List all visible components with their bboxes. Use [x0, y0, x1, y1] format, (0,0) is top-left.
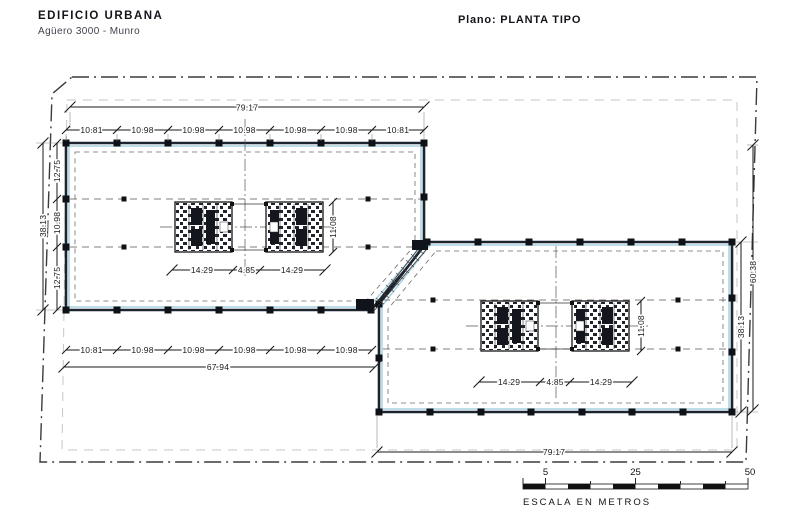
- dim-top-bay-label: 10.98: [233, 125, 255, 135]
- dim-left-bay-label: 10.98: [52, 212, 62, 234]
- dim-top-bay-label: 10.81: [80, 125, 102, 135]
- dim-bottom-total-a-label: 67.94: [207, 362, 229, 372]
- dim-core-a-label: 14.29: [191, 265, 213, 275]
- dim-top-bay-label: 10.81: [387, 125, 409, 135]
- scale-bar-caption: ESCALA EN METROS: [523, 497, 651, 508]
- dim-core-b-label: 4.85: [546, 377, 563, 387]
- scale-bar: 5 25 50 ESCALA EN METROS: [523, 467, 755, 508]
- dim-top-total-label: 79.17: [236, 103, 258, 113]
- dim-bottom-bay-label: 10.98: [335, 345, 357, 355]
- dim-bottom-bay-label: 10.98: [182, 345, 204, 355]
- dim-top-bay-label: 10.98: [335, 125, 357, 135]
- dim-bottom-total-b-label: 79.17: [543, 447, 565, 457]
- dim-core-a-label: 14.29: [281, 265, 303, 275]
- dim-top-total: 79.17: [65, 102, 430, 113]
- dim-bottom-bays-a: 10.81 10.98 10.98 10.98 10.98 10.98: [62, 345, 376, 355]
- dim-left-bay-label: 12.75: [52, 267, 62, 289]
- dim-left-bays: 12.75 10.98 12.75: [52, 139, 62, 314]
- dim-right-site: 60.38: [748, 140, 759, 416]
- dim-left-total-label: 38.13: [38, 215, 48, 237]
- dim-right-building-label: 38.13: [736, 316, 746, 338]
- scale-bar-label-50: 50: [745, 467, 756, 478]
- scale-bar-label-25: 25: [630, 467, 641, 478]
- scale-bar-label-5: 5: [543, 467, 548, 478]
- dim-right-site-label: 60.38: [748, 261, 758, 283]
- joint-end-block-bottom: [356, 299, 374, 310]
- dim-left-total: 38.13: [38, 138, 49, 316]
- dim-left-bay-label: 12.75: [52, 160, 62, 182]
- dim-bottom-bay-label: 10.98: [233, 345, 255, 355]
- dim-top-bay-label: 10.98: [131, 125, 153, 135]
- dim-bottom-bay-label: 10.81: [80, 345, 102, 355]
- dim-core-b-label: 14.29: [590, 377, 612, 387]
- building-b: [376, 239, 736, 416]
- dim-core-b-label: 14.29: [498, 377, 520, 387]
- dim-bottom-bay-label: 10.98: [131, 345, 153, 355]
- dim-top-bays: 10.81 10.98 10.98 10.98 10.98 10.98 10.8…: [62, 125, 428, 135]
- dim-core-a-label: 4.85: [238, 265, 255, 275]
- dim-core-b-depth-label: 11.08: [636, 315, 646, 337]
- dim-core-a-depth-label: 11.08: [328, 216, 338, 238]
- building-a: [63, 119, 428, 314]
- floor-plan-sheet: EDIFICIO URBANA Agüero 3000 - Munro Plan…: [0, 0, 800, 527]
- dim-bottom-bay-label: 10.98: [284, 345, 306, 355]
- scale-bar-ticks: [523, 478, 748, 484]
- dim-bottom-total-a: 67.94: [59, 362, 381, 373]
- plan-drawing: 79.17 10.81 10.98 10.98 10.98 10.98 10.9…: [0, 0, 800, 527]
- joint-end-block-top: [412, 240, 428, 250]
- dim-bottom-total-b: 79.17: [372, 447, 738, 458]
- dim-top-bay-label: 10.98: [284, 125, 306, 135]
- dim-top-bay-label: 10.98: [182, 125, 204, 135]
